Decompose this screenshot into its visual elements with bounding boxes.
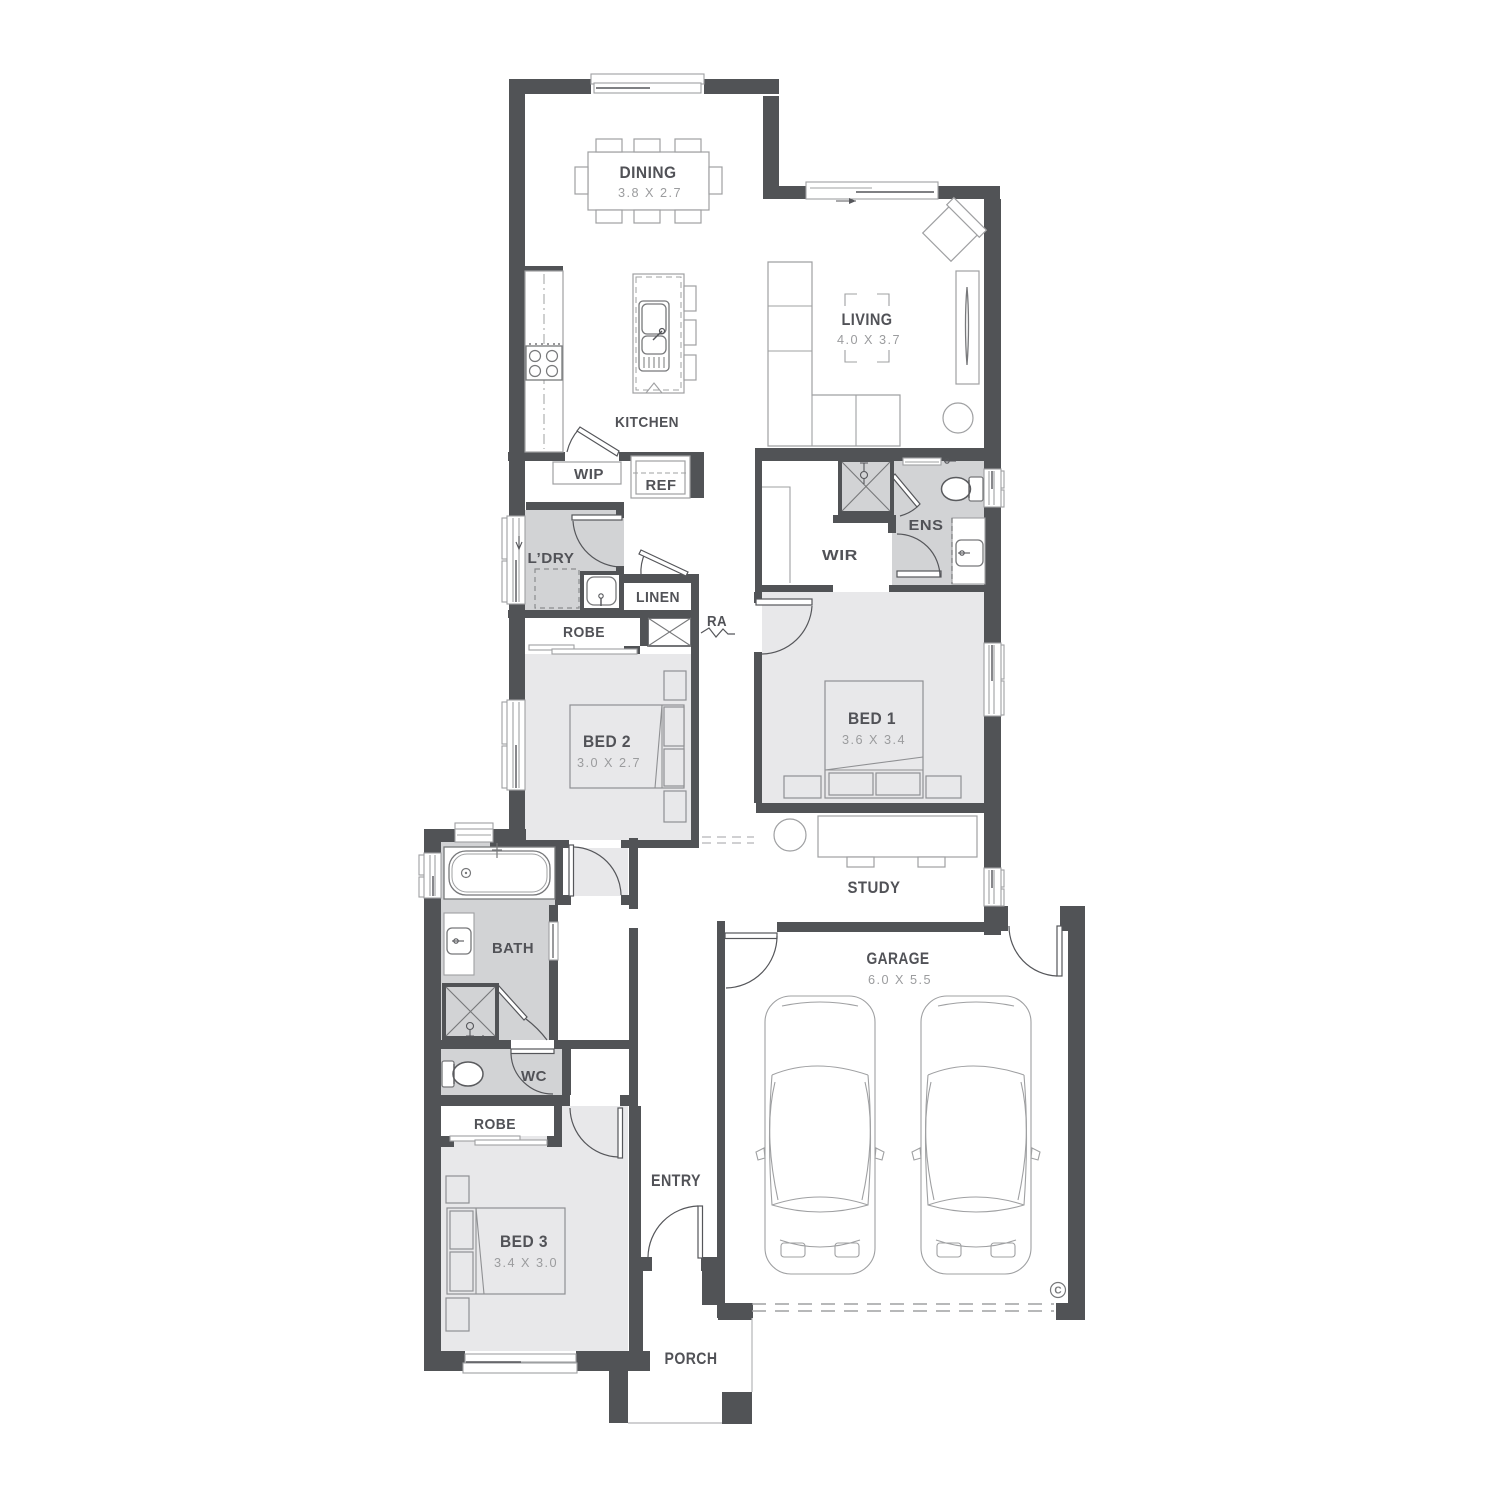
svg-text:BED 2: BED 2: [583, 732, 631, 751]
svg-text:ROBE: ROBE: [474, 1116, 516, 1133]
svg-text:ROBE: ROBE: [563, 624, 605, 641]
svg-text:LINEN: LINEN: [636, 589, 680, 606]
svg-text:DINING: DINING: [620, 163, 677, 182]
svg-text:ENTRY: ENTRY: [651, 1171, 701, 1190]
svg-text:KITCHEN: KITCHEN: [615, 414, 679, 431]
svg-text:C: C: [1054, 1286, 1061, 1297]
svg-text:4.0 X 3.7: 4.0 X 3.7: [837, 332, 901, 347]
svg-text:STUDY: STUDY: [848, 878, 901, 897]
svg-text:BED 1: BED 1: [848, 709, 896, 728]
svg-text:3.4 X 3.0: 3.4 X 3.0: [494, 1255, 558, 1270]
svg-text:BATH: BATH: [492, 940, 534, 957]
svg-text:REF: REF: [646, 477, 677, 494]
svg-text:LIVING: LIVING: [842, 310, 893, 329]
svg-text:RA: RA: [707, 613, 727, 630]
svg-text:3.8 X 2.7: 3.8 X 2.7: [618, 185, 682, 200]
svg-text:PORCH: PORCH: [665, 1349, 718, 1368]
svg-text:6.0 X 5.5: 6.0 X 5.5: [868, 972, 932, 987]
svg-text:BED 3: BED 3: [500, 1232, 548, 1251]
svg-text:WIR: WIR: [822, 547, 858, 564]
svg-text:ENS: ENS: [909, 517, 944, 534]
svg-text:3.6 X 3.4: 3.6 X 3.4: [842, 732, 906, 747]
svg-text:3.0 X 2.7: 3.0 X 2.7: [577, 755, 641, 770]
svg-text:WIP: WIP: [574, 466, 604, 483]
svg-text:GARAGE: GARAGE: [867, 949, 930, 968]
svg-text:WC: WC: [521, 1068, 547, 1085]
svg-text:L’DRY: L’DRY: [528, 550, 575, 567]
